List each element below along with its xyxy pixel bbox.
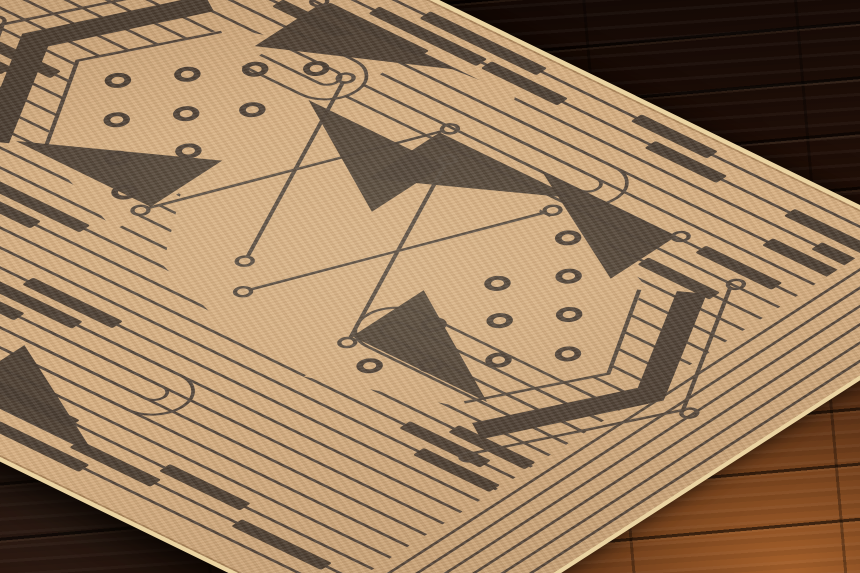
photo-scene — [0, 0, 860, 573]
